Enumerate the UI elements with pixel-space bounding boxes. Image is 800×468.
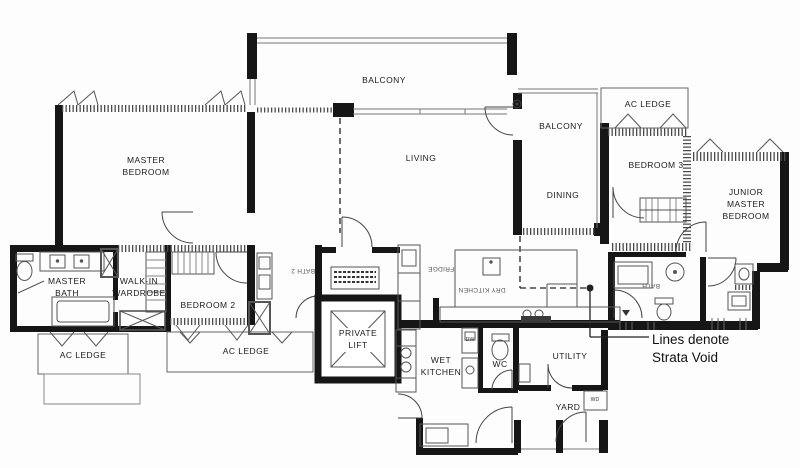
room-label-junior-master-bedroom: JUNIOR MASTER BEDROOM [714, 187, 778, 223]
room-label-balcony-top: BALCONY [362, 75, 406, 87]
floorplan-linework [0, 0, 800, 468]
room-label-walk-in-wardrobe: WALK-IN WARDROBE [110, 276, 168, 300]
room-label-bath-2: BATH 2 [290, 266, 316, 274]
appliance-label-fridge: FRIDGE [428, 264, 454, 272]
room-label-bedroom-3: BEDROOM 3 [626, 160, 686, 172]
room-label-master-bedroom: MASTER BEDROOM [111, 155, 181, 179]
room-label-living: LIVING [406, 153, 437, 165]
room-label-ac-ledge-left: AC LEDGE [60, 350, 107, 362]
strata-void-note: Lines denote Strata Void [652, 331, 762, 366]
room-label-wet-kitchen: WET KITCHEN [417, 355, 465, 379]
room-label-ac-ledge-top-right: AC LEDGE [625, 99, 672, 111]
window-flaps [50, 91, 783, 346]
room-label-private-lift: PRIVATE LIFT [333, 328, 383, 352]
room-label-dry-kitchen: DRY KITCHEN [447, 285, 517, 293]
room-label-yard: YARD [556, 402, 581, 414]
room-label-bedroom-2: BEDROOM 2 [176, 300, 240, 312]
room-label-master-bath: MASTER BATH [42, 276, 92, 300]
room-label-balcony-right: BALCONY [539, 121, 583, 133]
appliance-label-dishwasher: DW [466, 337, 475, 343]
room-label-utility: UTILITY [553, 351, 588, 363]
room-label-dining: DINING [547, 190, 579, 202]
room-label-ac-ledge-center: AC LEDGE [223, 346, 270, 358]
appliance-label-washer-dryer: WD [591, 397, 600, 403]
room-label-jr-bath: BATH [642, 281, 660, 289]
floor-plan: MASTER BEDROOM BALCONY LIVING BALCONY AC… [0, 0, 800, 468]
room-label-wc: WC [492, 359, 507, 371]
